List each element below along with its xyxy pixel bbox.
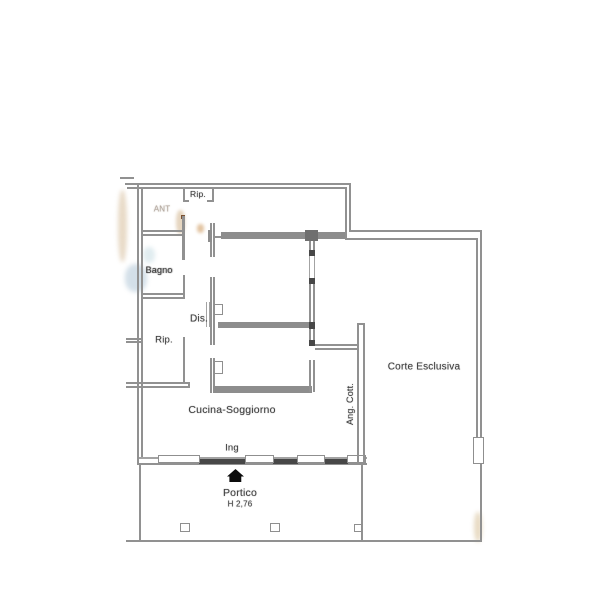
courtyard-left-wall-cap [357,323,365,325]
artifact-smudge [197,224,204,233]
artifact-smudge [118,190,127,262]
room-label-cooking-corner: Ang. Cott. [345,383,355,425]
storage-bottom-wall [126,386,190,388]
anteroom-wall [141,230,183,232]
room-label-storage-left: Rip. [155,335,173,346]
courtyard-top-wall-outer [349,230,482,232]
left-wall-inner [141,187,143,458]
artifact-smudge [143,247,155,263]
kitchen-corner-wall [309,360,311,392]
bathroom-wall [141,293,185,295]
room-label-entrance: Ing [225,443,239,454]
hall-left-wall [182,216,185,260]
window [158,455,200,463]
top-wall-inner [127,187,347,189]
courtyard-right-wall-outer [480,230,482,542]
door-leaf [209,302,210,327]
room-label-anteroom: ANT [154,205,171,214]
door-jamb [214,361,223,374]
bedroom-divider-wall [218,322,309,328]
hall-left-wall [183,275,185,297]
porch-column [180,523,190,532]
wall-post [305,230,318,241]
window-line [314,256,315,278]
room-label-porch: Portico [223,487,257,499]
wall-tick [126,341,141,343]
kitchen-corner-wall [313,360,315,392]
south-wall-dark-segment [273,459,298,464]
left-wall-outer [137,183,139,465]
bedroom-right-wall [309,284,311,324]
cooking-corner-top-wall [315,344,359,346]
window-line [309,256,310,278]
courtyard-left-wall [357,323,359,464]
room-label-porch-height: H 2,76 [228,500,253,509]
window [245,455,274,463]
storage-bottom-wall [126,382,190,384]
wall-tick [120,177,134,179]
south-wall-dark-segment [325,459,348,464]
artifact-smudge [125,264,147,292]
room-label-courtyard: Corte Esclusiva [388,362,460,373]
entrance-arrow-icon [227,469,244,482]
bedroom-top-wall [221,232,345,239]
door-block [309,322,315,329]
porch-column [354,524,362,532]
window [297,455,325,463]
entrance-door-segment [199,459,245,464]
courtyard-top-wall-inner [345,238,478,240]
bathroom-wall [141,297,185,299]
room-label-kitchen-living: Cucina-Soggiorno [188,404,275,416]
anteroom-wall [141,234,183,236]
porch-bottom-line [126,540,482,542]
cooking-corner-top-wall [315,348,359,350]
courtyard-wall-window [473,437,484,464]
hall-right-wall [213,223,215,257]
storage-wall-cap [188,382,190,388]
building-right-wall-outer [349,183,351,232]
room-label-hallway: Dis. [190,314,208,325]
wall-tick [126,338,141,340]
door-jamb [208,230,212,242]
hall-right-wall [210,277,212,345]
bedroom-right-wall [313,284,315,324]
door-jamb [214,304,223,315]
porch-left-line [139,465,141,542]
hall-left-wall [183,337,185,383]
closet-cap [207,200,214,202]
room-label-bathroom: Bagno [145,265,172,275]
room-label-storage-top: Rip. [190,189,206,199]
courtyard-right-wall-inner [476,240,478,437]
building-right-wall-inner [345,187,347,238]
hall-right-wall [210,358,212,393]
closet-cap [183,200,189,202]
floor-plan: Rip. ANT Bagno Dis. Rip. Cucina-Soggiorn… [0,0,602,598]
porch-column [270,523,280,532]
top-wall-outer [125,183,351,185]
bedroom-bottom-wall [213,386,312,393]
courtyard-left-wall [363,323,365,464]
